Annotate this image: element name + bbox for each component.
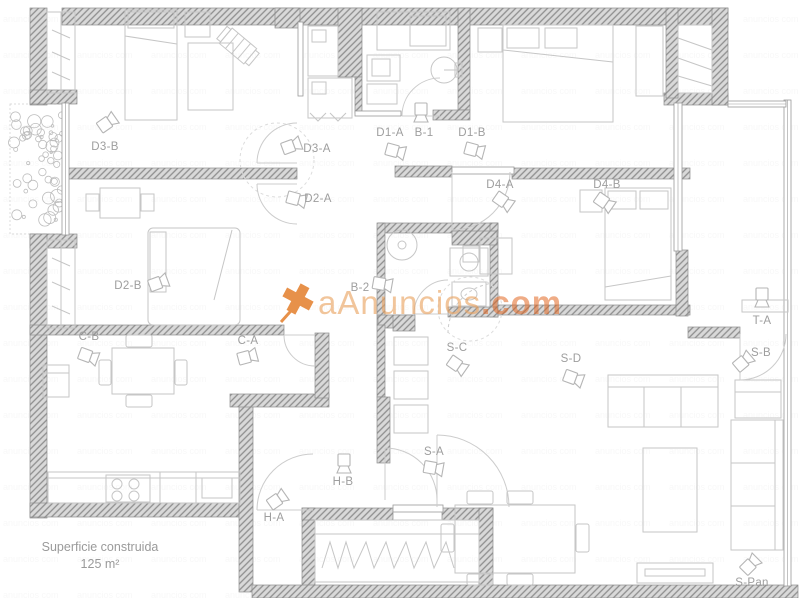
room-label-d1-a: D1-A <box>376 127 403 139</box>
floor-plan-drawing: anuncios com <box>0 0 800 598</box>
room-label-d1-b: D1-B <box>458 127 485 139</box>
watermark-text-suffix: .com <box>481 284 562 321</box>
watermark-text-main: aAnuncios <box>318 284 481 321</box>
room-label-t-a: T-A <box>753 315 772 327</box>
floor-plan: anuncios com <box>0 0 800 598</box>
room-label-d4-b: D4-B <box>593 179 620 191</box>
room-label-d4-a: D4-A <box>486 179 513 191</box>
room-label-c-a: C-A <box>238 335 259 347</box>
watermark-text: aAnuncios.com <box>318 284 562 321</box>
room-label-h-b: H-B <box>333 476 354 488</box>
camera-viewpoint-icon <box>755 288 769 307</box>
room-label-s-a: S-A <box>424 446 444 458</box>
camera-viewpoint-icon <box>414 103 428 122</box>
room-label-d3-b: D3-B <box>91 141 118 153</box>
camera-viewpoint-icon <box>337 454 351 473</box>
built-area-label: Superficie construida <box>42 540 159 554</box>
watermark: aAnuncios.com <box>281 283 562 322</box>
room-label-s-pan: S-Pan <box>735 577 768 589</box>
room-label-d3-a: D3-A <box>303 143 330 155</box>
built-area-value: 125 m² <box>81 557 120 571</box>
room-label-b-1: B-1 <box>415 127 434 139</box>
room-label-s-c: S-C <box>447 342 468 354</box>
room-label-d2-b: D2-B <box>114 280 141 292</box>
room-label-h-a: H-A <box>264 512 285 524</box>
room-label-c-b: C-B <box>79 331 100 343</box>
room-label-s-b: S-B <box>751 347 771 359</box>
room-label-s-d: S-D <box>561 353 582 365</box>
room-label-d2-a: D2-A <box>304 193 331 205</box>
